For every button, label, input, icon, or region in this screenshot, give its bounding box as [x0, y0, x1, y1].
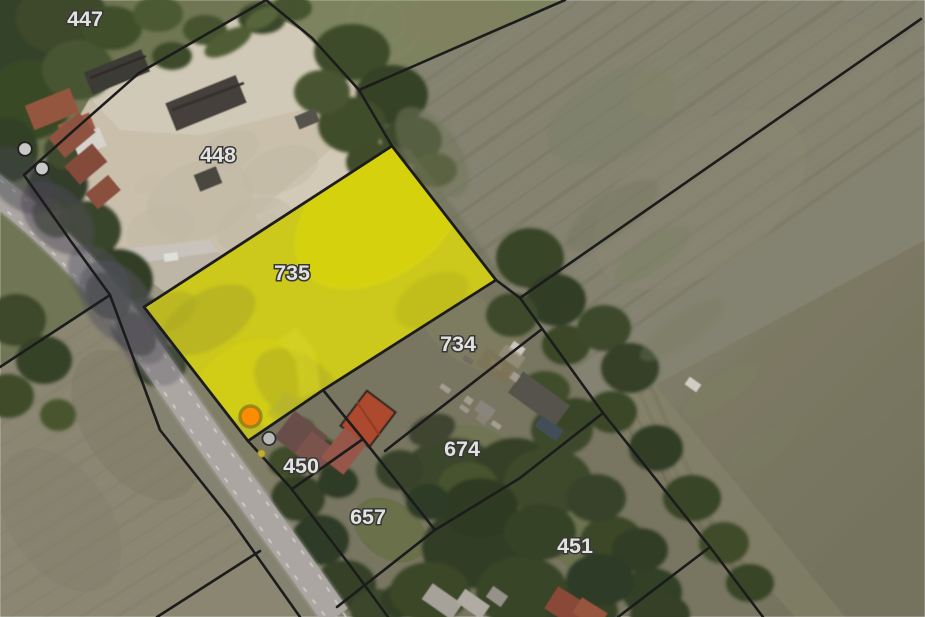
svg-text:450: 450 — [283, 454, 319, 478]
svg-text:674: 674 — [444, 437, 480, 461]
svg-text:447: 447 — [67, 7, 103, 31]
svg-text:657: 657 — [350, 505, 386, 529]
svg-text:734: 734 — [440, 332, 476, 356]
svg-text:448: 448 — [200, 143, 236, 167]
svg-text:735: 735 — [274, 261, 310, 285]
svg-text:451: 451 — [557, 534, 593, 558]
